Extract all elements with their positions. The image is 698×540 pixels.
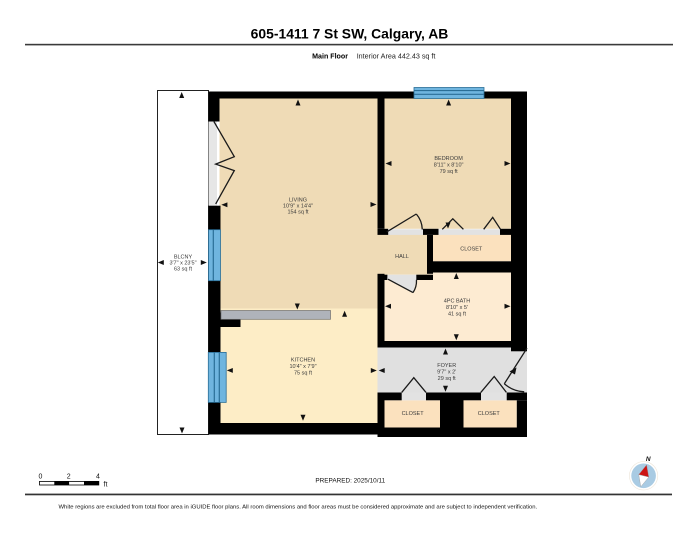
svg-text:154 sq ft: 154 sq ft: [287, 210, 309, 216]
svg-text:4PC BATH: 4PC BATH: [444, 299, 471, 305]
svg-text:LIVING: LIVING: [289, 197, 307, 203]
svg-text:CLOSET: CLOSET: [478, 411, 501, 417]
svg-text:10'9" x 14'4": 10'9" x 14'4": [283, 203, 313, 209]
svg-text:29 sq ft: 29 sq ft: [438, 376, 457, 382]
svg-text:41 sq ft: 41 sq ft: [448, 312, 467, 318]
svg-text:CLOSET: CLOSET: [460, 246, 483, 252]
svg-text:CLOSET: CLOSET: [402, 411, 425, 417]
svg-text:Main Floor: Main Floor: [312, 52, 348, 60]
svg-text:4: 4: [96, 473, 100, 480]
svg-text:N: N: [646, 456, 651, 463]
svg-text:8'11" x 8'10": 8'11" x 8'10": [434, 162, 464, 168]
svg-text:8'10" x 5': 8'10" x 5': [446, 305, 468, 311]
svg-text:KITCHEN: KITCHEN: [291, 358, 315, 364]
svg-text:605-1411 7 St SW, Calgary, AB: 605-1411 7 St SW, Calgary, AB: [251, 26, 449, 42]
svg-text:10'4" x 7'9": 10'4" x 7'9": [289, 364, 316, 370]
svg-text:Interior Area 442.43 sq ft: Interior Area 442.43 sq ft: [357, 51, 436, 60]
svg-text:BEDROOM: BEDROOM: [434, 156, 463, 162]
svg-text:0: 0: [39, 473, 43, 480]
svg-text:ft: ft: [104, 482, 108, 489]
svg-text:BLCNY: BLCNY: [174, 254, 193, 260]
svg-text:2: 2: [67, 473, 71, 480]
svg-text:White regions are excluded fro: White regions are excluded from total fl…: [59, 504, 538, 510]
svg-text:75 sq ft: 75 sq ft: [294, 370, 313, 376]
svg-text:FOYER: FOYER: [437, 363, 456, 369]
svg-text:63 sq ft: 63 sq ft: [174, 266, 193, 272]
svg-text:PREPARED: 2025/10/11: PREPARED: 2025/10/11: [315, 478, 385, 485]
svg-text:79 sq ft: 79 sq ft: [440, 169, 459, 175]
svg-text:HALL: HALL: [395, 254, 409, 260]
svg-text:9'7" x 2': 9'7" x 2': [437, 370, 456, 376]
